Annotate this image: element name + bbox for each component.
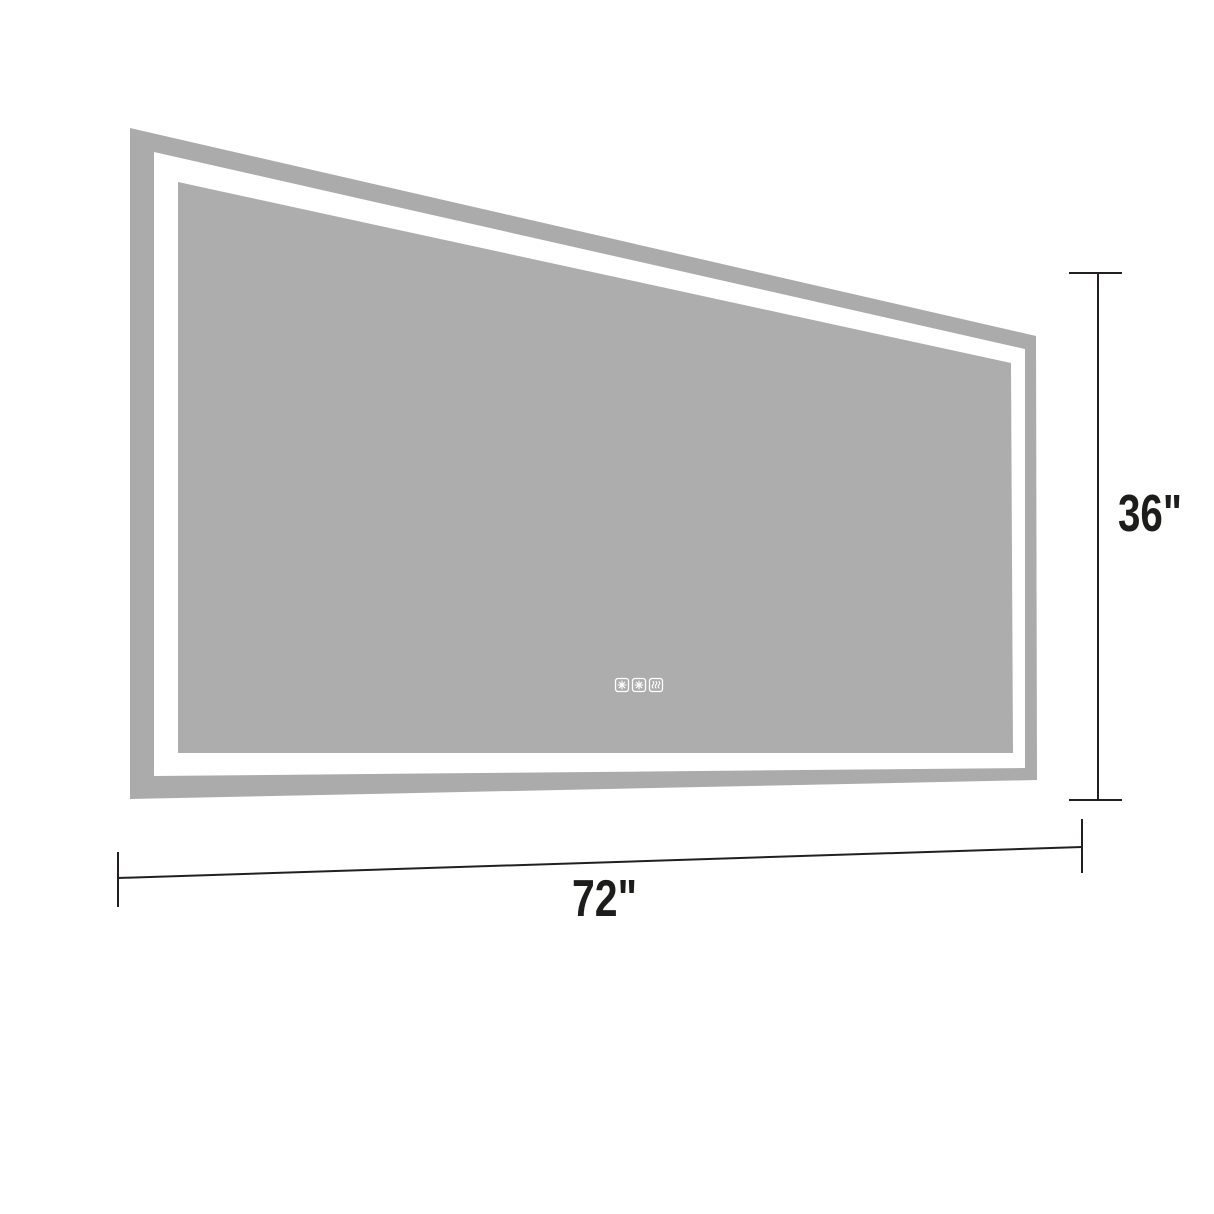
- height-dimension: 36": [1069, 273, 1182, 800]
- width-dimension-label: 72": [572, 870, 637, 928]
- diagram-canvas: 36" 72": [0, 0, 1214, 1214]
- product-dimension-diagram: 36" 72": [0, 0, 1214, 1214]
- snowflake-icon: [635, 681, 643, 689]
- snowflake-icon: [618, 681, 626, 689]
- led-mirror: [130, 128, 1037, 799]
- height-dimension-label: 36": [1118, 485, 1182, 543]
- width-dimension: 72": [118, 819, 1082, 928]
